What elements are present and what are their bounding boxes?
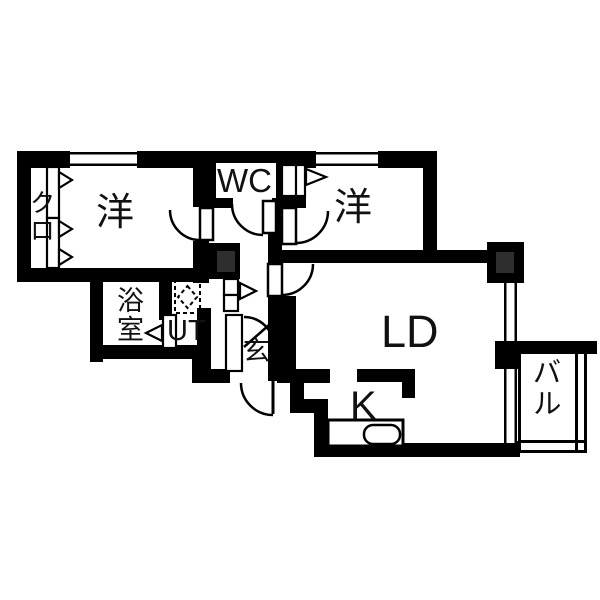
window-icon <box>504 369 517 443</box>
room-label-living-dining: LD <box>381 309 439 354</box>
wall-stair-3 <box>314 399 328 447</box>
sliding-door-arrow-icon <box>146 325 162 341</box>
door-bedroom-east <box>282 208 328 244</box>
sliding-door-panel <box>224 279 238 295</box>
sliding-door-arrow-icon <box>59 172 72 188</box>
sliding-door-arrow-icon <box>240 283 256 299</box>
wall-bath-bottom <box>90 345 205 359</box>
door-living-dining <box>268 264 313 296</box>
pillar-inner <box>217 251 235 272</box>
door-swing-arc-icon <box>170 210 200 240</box>
wall-bath-right <box>159 268 172 320</box>
washing-machine-pan-icon <box>175 281 200 313</box>
sliding-door-arrow-icon <box>59 249 72 265</box>
room-label-balcony: バル <box>529 357 558 419</box>
sliding-door-panel <box>224 295 238 311</box>
wall-bedroom-east-right <box>423 151 437 263</box>
sliding-door-arrow-icon <box>306 169 326 185</box>
wall-entrance-bottom-right <box>277 369 330 383</box>
door-leaf <box>263 201 276 233</box>
floor-plan-drawing <box>0 0 600 600</box>
door-swing-arc-icon <box>241 383 273 415</box>
floor-plan: クロ 洋 WC 洋 浴室 UT 玄 LD K バル <box>0 0 600 600</box>
door-leaf <box>268 264 282 296</box>
room-label-bathroom: 浴室 <box>114 286 141 344</box>
wall-bedroom-east-ld-divider <box>282 250 487 263</box>
room-label-entrance: 玄 <box>243 338 270 365</box>
door-swing-arc-icon <box>296 211 328 243</box>
pillar-inner <box>496 252 514 273</box>
shoe-cabinet <box>226 315 242 371</box>
room-label-utility: UT <box>167 317 206 346</box>
wall-entrance-bottom-left <box>192 369 230 383</box>
wall-ld-right-bottom-corner <box>504 441 520 457</box>
room-label-bedroom-east: 洋 <box>334 189 372 227</box>
door-leaf <box>282 208 296 244</box>
door-leaf <box>272 381 275 414</box>
closet-east-box <box>282 165 305 196</box>
wall-ld-right-corner <box>495 341 520 369</box>
room-label-kitchen: K <box>350 386 377 426</box>
sliding-door-arrow-icon <box>59 221 72 237</box>
door-leaf <box>200 208 213 240</box>
room-label-closet: クロ <box>28 189 54 245</box>
door-entrance-front <box>241 381 275 415</box>
wall-kitchen-partition-v <box>402 369 415 398</box>
door-swing-arc-icon <box>282 264 313 295</box>
window-icon <box>316 151 378 168</box>
door-swing-arc-icon <box>232 204 263 235</box>
room-label-toilet: WC <box>217 164 272 197</box>
room-label-bedroom-west: 洋 <box>96 194 134 232</box>
window-icon <box>70 151 137 168</box>
window-icon <box>504 283 517 341</box>
wall-divider-west-upper <box>193 151 207 207</box>
door-bedroom-west <box>170 208 213 240</box>
